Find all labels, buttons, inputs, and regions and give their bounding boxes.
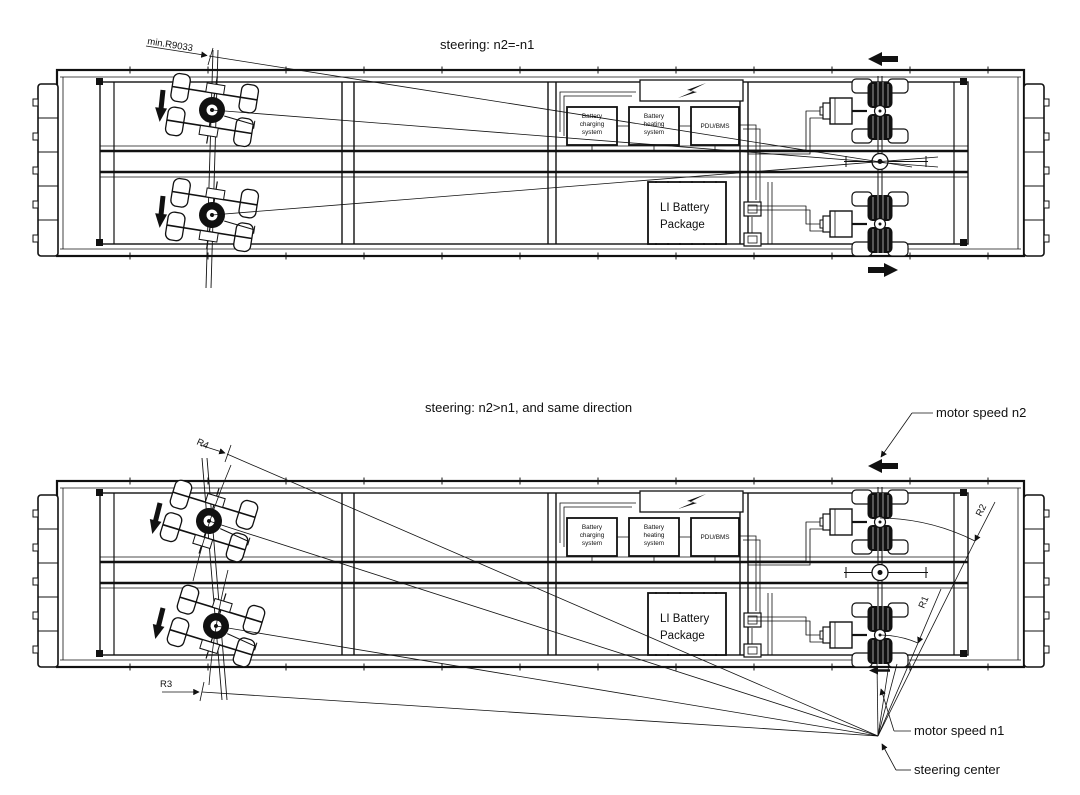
top-diagram-title: steering: n2=-n1 xyxy=(440,37,534,52)
diagram-bottom-same-direction-steering: steering: n2>n1, and same direction xyxy=(33,400,1049,777)
r3-label: R3 xyxy=(160,679,172,690)
motor-speed-n2-label: motor speed n2 xyxy=(936,405,1026,420)
bottom-diagram-title: steering: n2>n1, and same direction xyxy=(425,400,632,415)
diagram-top-spin-steering: steering: n2=-n1 min.R9033 xyxy=(33,36,1049,288)
motor-speed-n1-label: motor speed n1 xyxy=(914,723,1004,738)
r4-label: R4 xyxy=(195,437,211,452)
min-radius-label: min.R9033 xyxy=(147,36,194,54)
drawing-canvas: Battery charging system Battery heating … xyxy=(0,0,1080,795)
schematic-svg: Battery charging system Battery heating … xyxy=(0,0,1080,795)
steering-center-label: steering center xyxy=(914,762,1001,777)
